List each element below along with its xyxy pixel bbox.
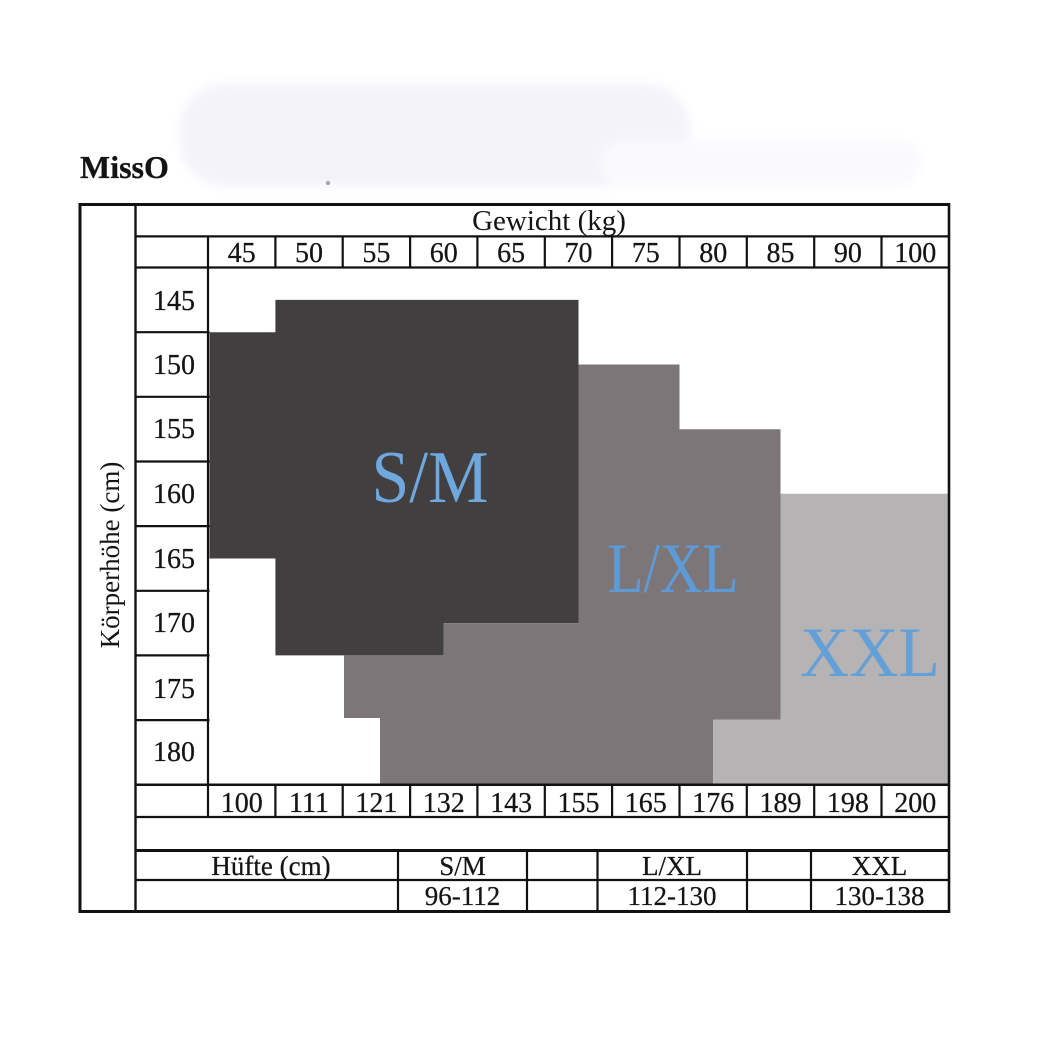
svg-text:55: 55 xyxy=(362,238,390,269)
svg-text:L/XL: L/XL xyxy=(608,530,739,608)
svg-text:198: 198 xyxy=(827,788,869,819)
svg-text:155: 155 xyxy=(558,788,600,819)
svg-text:Körperhöhe (cm): Körperhöhe (cm) xyxy=(95,462,125,649)
svg-text:155: 155 xyxy=(153,414,195,445)
svg-text:XXL: XXL xyxy=(800,614,940,692)
svg-text:80: 80 xyxy=(699,238,727,269)
svg-text:90: 90 xyxy=(834,238,862,269)
svg-text:180: 180 xyxy=(153,737,195,768)
svg-text:60: 60 xyxy=(430,238,458,269)
svg-text:MissO: MissO xyxy=(80,149,169,185)
svg-text:Hüfte (cm): Hüfte (cm) xyxy=(211,851,330,881)
svg-text:Gewicht (kg): Gewicht (kg) xyxy=(472,205,626,237)
svg-text:165: 165 xyxy=(625,788,667,819)
svg-text:45: 45 xyxy=(228,238,256,269)
svg-text:121: 121 xyxy=(355,788,397,819)
svg-text:S/M: S/M xyxy=(372,437,489,519)
svg-text:170: 170 xyxy=(153,608,195,639)
svg-text:50: 50 xyxy=(295,238,323,269)
svg-text:145: 145 xyxy=(153,286,195,317)
svg-text:200: 200 xyxy=(894,788,936,819)
svg-text:85: 85 xyxy=(767,238,795,269)
svg-text:100: 100 xyxy=(894,238,936,269)
svg-text:XXL: XXL xyxy=(852,851,908,881)
svg-text:130-138: 130-138 xyxy=(835,881,925,911)
svg-text:70: 70 xyxy=(565,238,593,269)
svg-text:175: 175 xyxy=(153,674,195,705)
svg-text:111: 111 xyxy=(289,788,329,819)
svg-text:165: 165 xyxy=(153,544,195,575)
svg-text:189: 189 xyxy=(760,788,802,819)
svg-text:160: 160 xyxy=(153,479,195,510)
svg-text:100: 100 xyxy=(221,788,263,819)
svg-text:L/XL: L/XL xyxy=(642,851,702,881)
svg-text:150: 150 xyxy=(153,350,195,381)
svg-text:132: 132 xyxy=(423,788,465,819)
svg-text:112-130: 112-130 xyxy=(628,881,717,911)
svg-text:S/M: S/M xyxy=(439,851,486,881)
svg-text:75: 75 xyxy=(632,238,660,269)
svg-text:176: 176 xyxy=(692,788,734,819)
svg-text:143: 143 xyxy=(490,788,532,819)
svg-text:96-112: 96-112 xyxy=(425,881,501,911)
svg-text:65: 65 xyxy=(497,238,525,269)
